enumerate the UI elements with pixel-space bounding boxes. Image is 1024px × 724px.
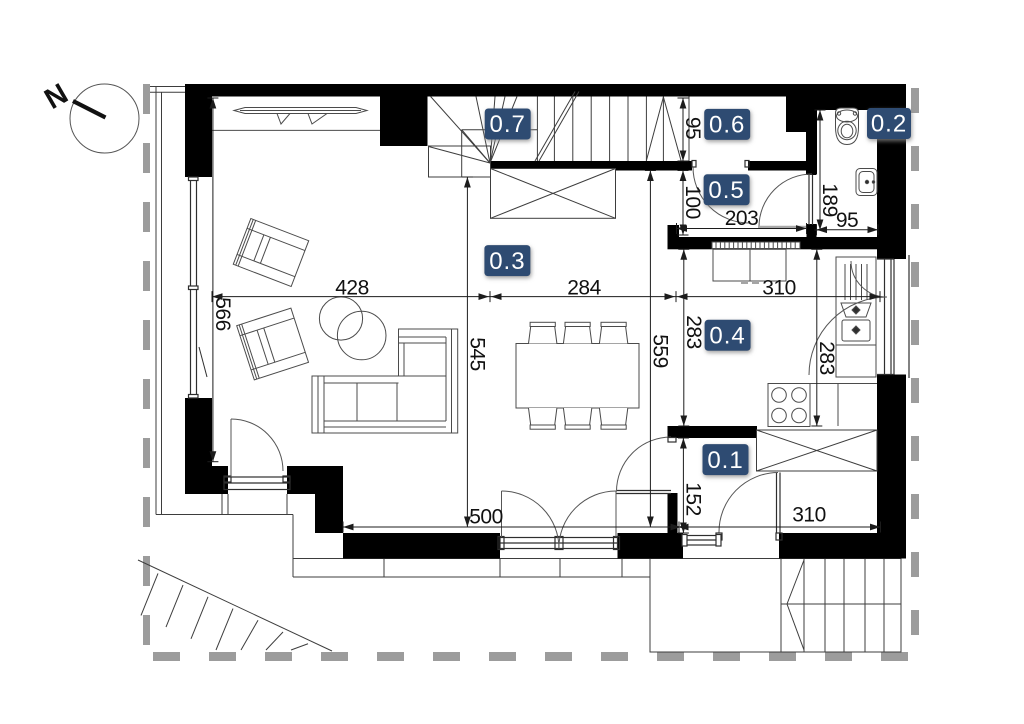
svg-text:0.6: 0.6 [709, 112, 745, 139]
svg-text:0.7: 0.7 [490, 111, 526, 138]
svg-text:0.1: 0.1 [707, 447, 743, 474]
svg-text:566: 566 [211, 297, 234, 331]
svg-text:203: 203 [725, 207, 759, 230]
svg-text:152: 152 [682, 482, 705, 516]
svg-text:500: 500 [469, 506, 503, 529]
svg-text:283: 283 [682, 315, 705, 349]
svg-text:0.2: 0.2 [871, 111, 907, 138]
svg-text:283: 283 [815, 341, 838, 375]
svg-text:559: 559 [648, 334, 671, 368]
svg-text:545: 545 [465, 337, 488, 371]
svg-text:284: 284 [567, 277, 601, 300]
svg-text:95: 95 [836, 209, 858, 232]
svg-text:428: 428 [335, 277, 369, 300]
svg-text:0.5: 0.5 [708, 177, 744, 204]
svg-text:310: 310 [762, 277, 796, 300]
svg-text:95: 95 [681, 117, 704, 139]
svg-text:310: 310 [792, 504, 826, 527]
svg-text:0.3: 0.3 [489, 248, 525, 275]
svg-text:100: 100 [681, 185, 704, 219]
svg-text:0.4: 0.4 [709, 323, 745, 350]
